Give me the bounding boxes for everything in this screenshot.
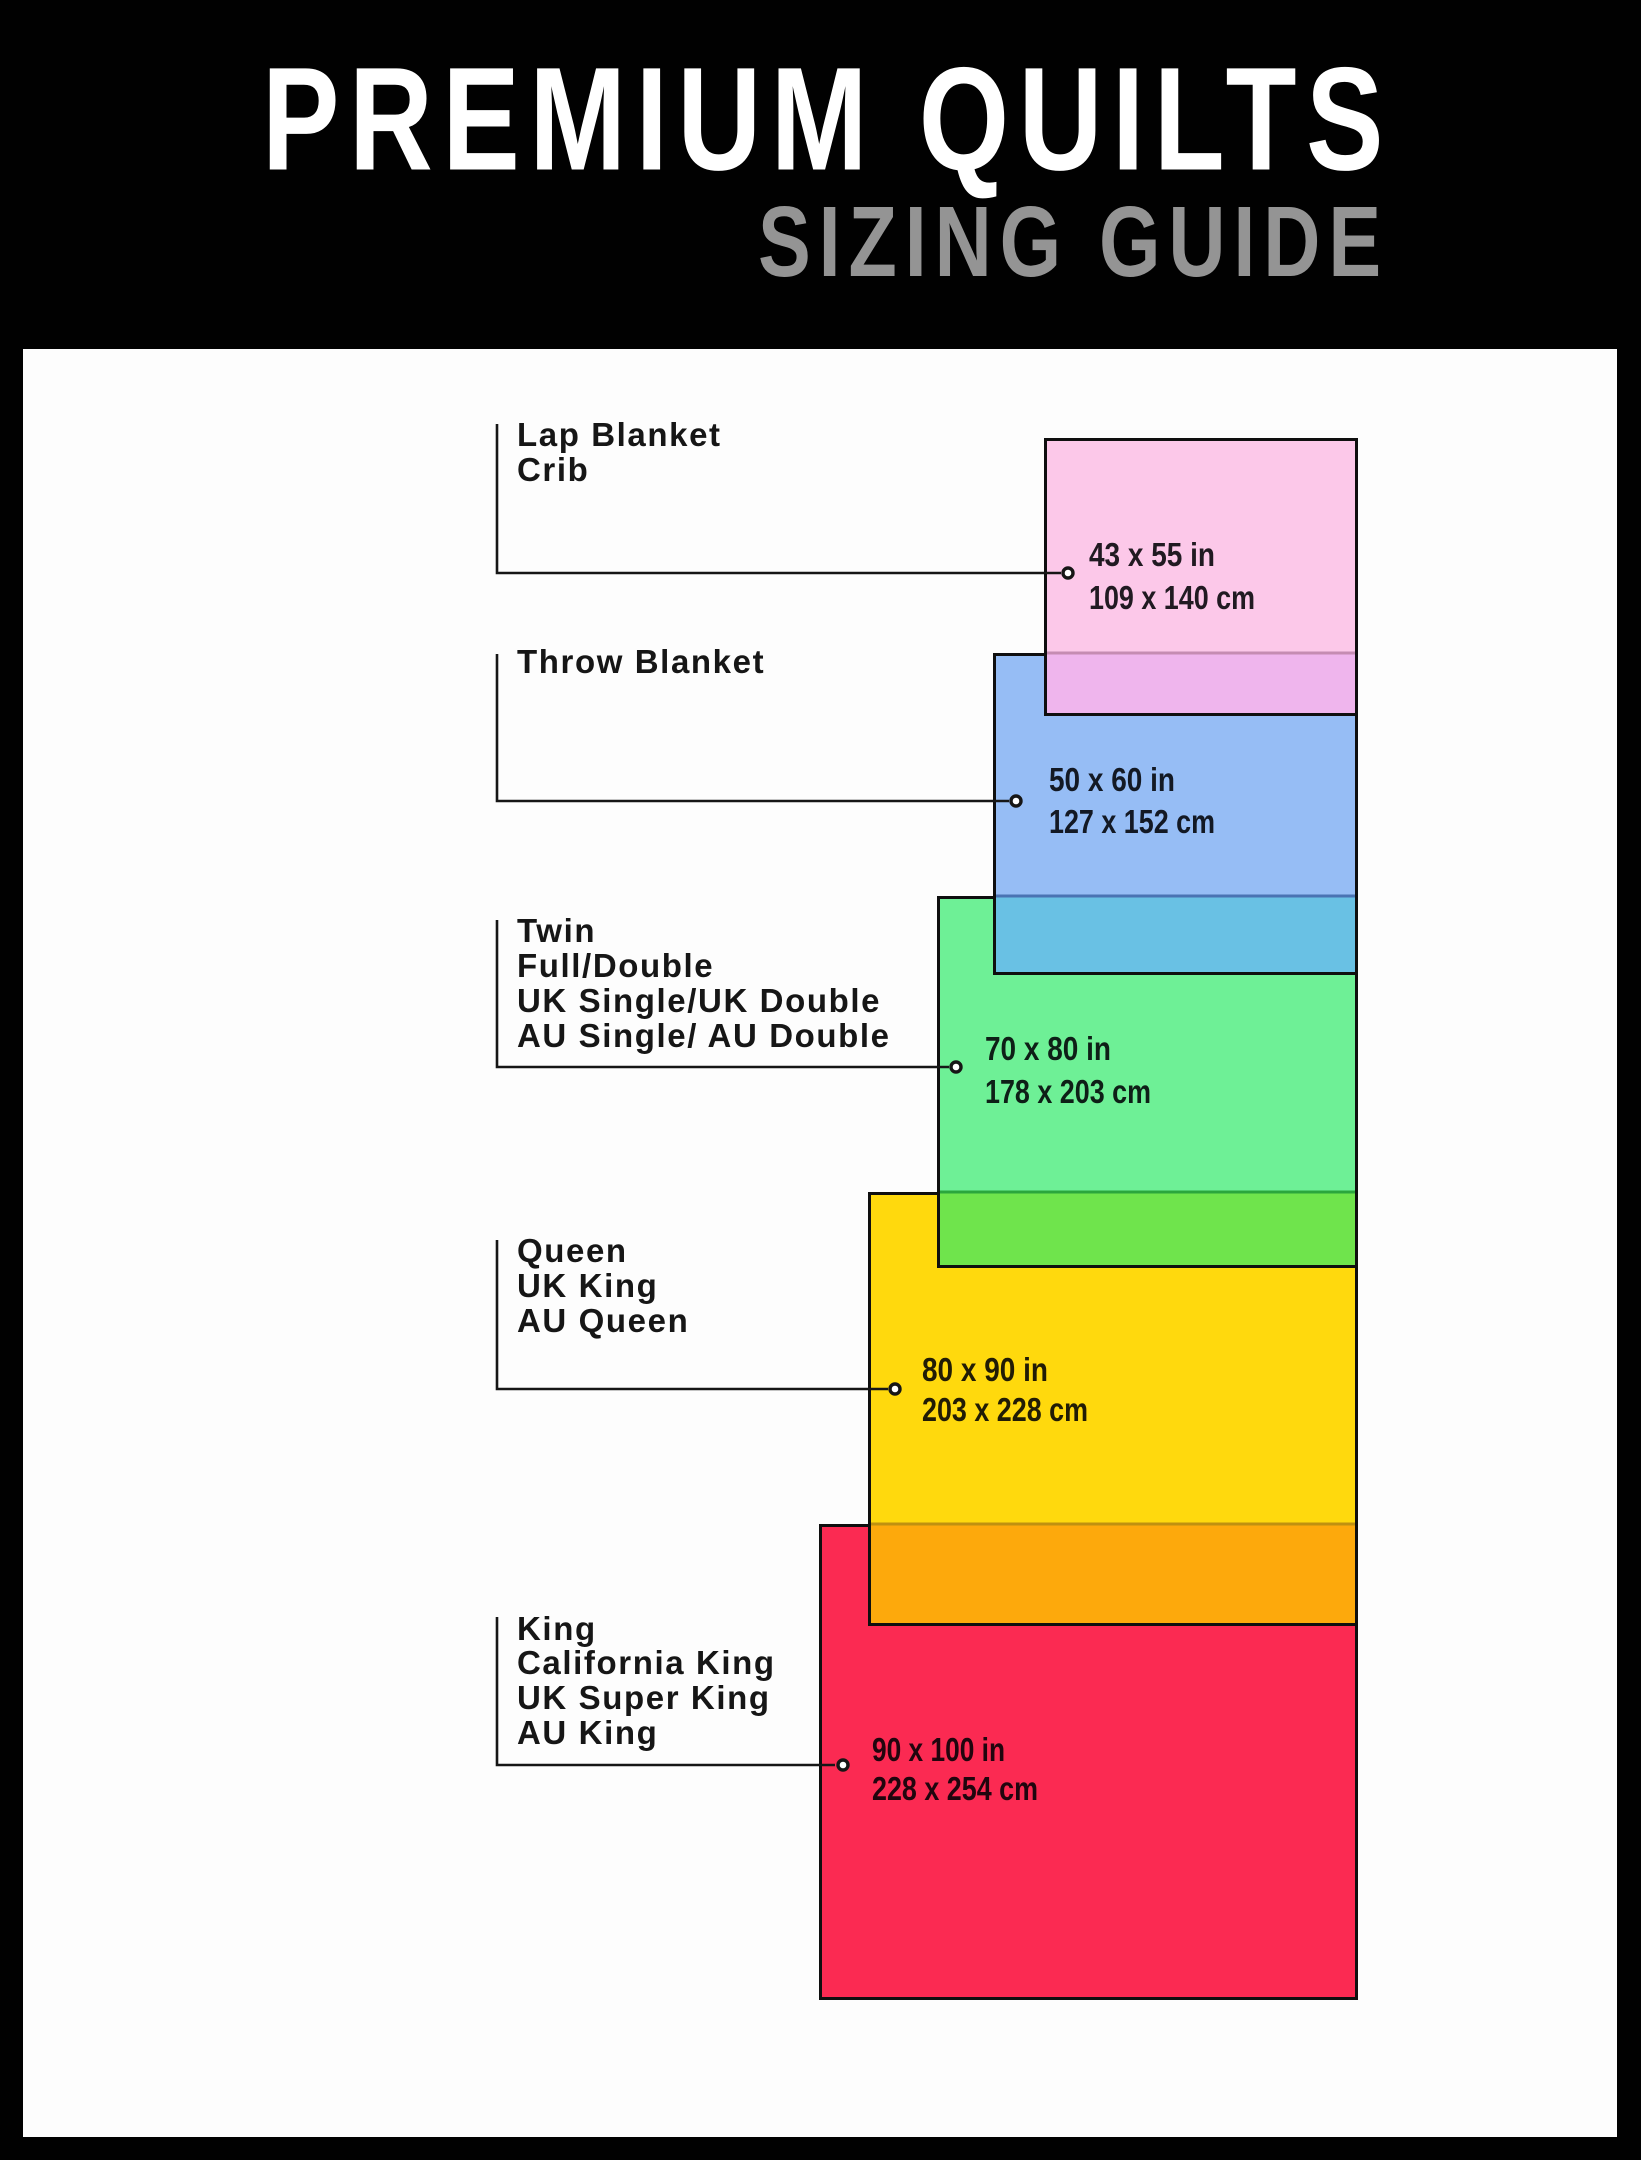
svg-text:AU Queen: AU Queen	[517, 1302, 689, 1339]
svg-text:80 x 90 in: 80 x 90 in	[922, 1351, 1048, 1388]
svg-text:203 x 228 cm: 203 x 228 cm	[922, 1391, 1088, 1428]
svg-text:Throw Blanket: Throw Blanket	[517, 643, 765, 680]
svg-text:70 x 80 in: 70 x 80 in	[985, 1030, 1111, 1067]
svg-text:43 x 55 in: 43 x 55 in	[1089, 536, 1215, 573]
svg-text:California King: California King	[517, 1644, 776, 1681]
svg-text:PREMIUM QUILTS: PREMIUM QUILTS	[262, 38, 1393, 202]
svg-text:AU King: AU King	[517, 1714, 658, 1751]
svg-text:127 x 152 cm: 127 x 152 cm	[1049, 803, 1215, 840]
svg-text:50 x 60 in: 50 x 60 in	[1049, 761, 1175, 798]
svg-text:178 x 203 cm: 178 x 203 cm	[985, 1073, 1151, 1110]
svg-text:109 x 140 cm: 109 x 140 cm	[1089, 579, 1255, 616]
svg-text:Twin: Twin	[517, 912, 596, 949]
svg-text:Full/Double: Full/Double	[517, 947, 714, 984]
svg-text:228 x 254 cm: 228 x 254 cm	[872, 1770, 1038, 1807]
svg-text:King: King	[517, 1610, 597, 1647]
svg-text:UK King: UK King	[517, 1267, 658, 1304]
svg-text:SIZING GUIDE: SIZING GUIDE	[758, 186, 1389, 298]
svg-text:Lap Blanket: Lap Blanket	[517, 416, 722, 453]
svg-text:AU Single/ AU Double: AU Single/ AU Double	[517, 1017, 891, 1054]
svg-text:UK Super King: UK Super King	[517, 1679, 771, 1716]
svg-text:Crib: Crib	[517, 451, 589, 488]
svg-text:90 x 100 in: 90 x 100 in	[872, 1731, 1005, 1768]
svg-text:UK Single/UK Double: UK Single/UK Double	[517, 982, 881, 1019]
svg-text:Queen: Queen	[517, 1232, 628, 1269]
